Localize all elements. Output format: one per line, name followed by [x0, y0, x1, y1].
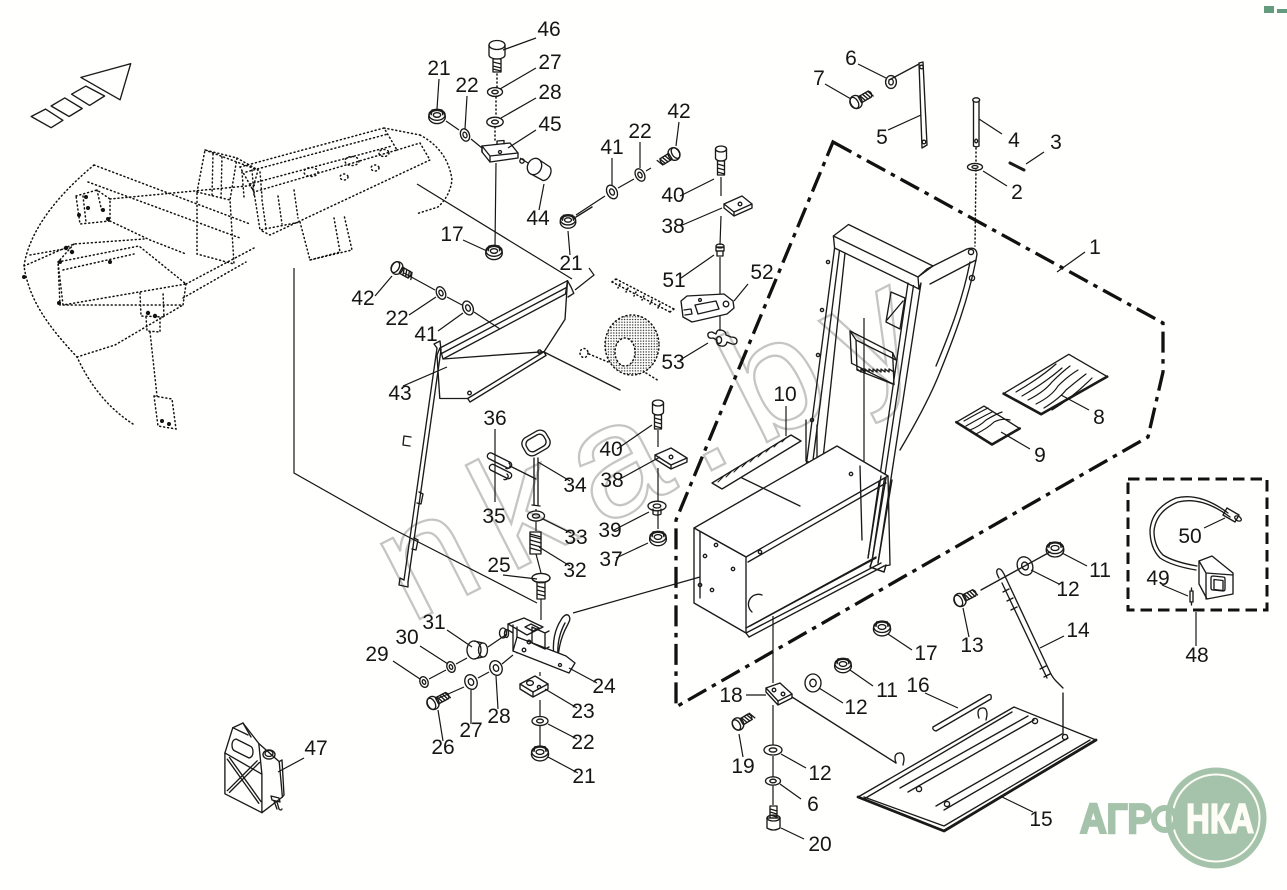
svg-text:51: 51	[662, 269, 685, 292]
svg-text:40: 40	[599, 438, 622, 461]
svg-text:52: 52	[750, 261, 773, 284]
svg-text:22: 22	[571, 731, 594, 754]
svg-text:17: 17	[440, 223, 463, 246]
svg-text:12: 12	[1056, 578, 1079, 601]
svg-text:28: 28	[538, 81, 561, 104]
svg-text:6: 6	[807, 793, 819, 816]
svg-text:28: 28	[487, 705, 510, 728]
svg-text:20: 20	[808, 833, 831, 856]
svg-text:23: 23	[571, 700, 594, 723]
svg-text:45: 45	[538, 113, 561, 136]
svg-text:1: 1	[1089, 236, 1101, 259]
svg-text:12: 12	[808, 762, 831, 785]
svg-text:22: 22	[628, 120, 651, 143]
svg-text:11: 11	[1089, 559, 1111, 582]
svg-text:2: 2	[1011, 181, 1023, 204]
svg-text:6: 6	[845, 47, 857, 70]
svg-text:41: 41	[600, 136, 623, 159]
svg-text:32: 32	[563, 559, 586, 582]
svg-text:8: 8	[1093, 406, 1105, 429]
svg-text:38: 38	[661, 215, 684, 238]
svg-text:42: 42	[351, 287, 374, 310]
svg-text:33: 33	[564, 526, 587, 549]
svg-text:41: 41	[414, 323, 437, 346]
svg-text:19: 19	[731, 755, 754, 778]
svg-text:47: 47	[304, 737, 327, 760]
svg-text:21: 21	[427, 57, 450, 80]
svg-text:25: 25	[487, 554, 510, 577]
svg-text:37: 37	[599, 548, 622, 571]
svg-text:12: 12	[844, 696, 867, 719]
svg-text:14: 14	[1066, 619, 1090, 642]
svg-text:50: 50	[1178, 525, 1201, 548]
svg-text:43: 43	[388, 382, 411, 405]
svg-text:21: 21	[572, 765, 595, 788]
svg-text:17: 17	[914, 642, 937, 665]
svg-text:48: 48	[1185, 644, 1208, 667]
svg-text:53: 53	[661, 351, 684, 374]
svg-text:3: 3	[1050, 131, 1062, 154]
svg-text:22: 22	[385, 307, 408, 330]
svg-text:4: 4	[1008, 129, 1020, 152]
svg-text:10: 10	[773, 383, 796, 406]
svg-text:13: 13	[960, 634, 983, 657]
svg-text:44: 44	[526, 207, 550, 230]
svg-text:НКА: НКА	[1186, 795, 1254, 842]
svg-text:27: 27	[538, 51, 561, 74]
svg-text:АГР: АГР	[1080, 795, 1152, 842]
svg-text:29: 29	[365, 643, 388, 666]
svg-text:31: 31	[422, 611, 445, 634]
svg-text:34: 34	[563, 474, 587, 497]
svg-text:30: 30	[395, 626, 418, 649]
svg-text:nka.by: nka.by	[344, 221, 963, 654]
svg-text:9: 9	[1034, 444, 1046, 467]
svg-text:35: 35	[482, 505, 505, 528]
svg-text:46: 46	[537, 18, 560, 41]
svg-text:21: 21	[559, 252, 582, 275]
svg-text:39: 39	[598, 519, 621, 542]
svg-text:36: 36	[483, 407, 506, 430]
svg-text:7: 7	[813, 67, 825, 90]
svg-text:11: 11	[876, 679, 898, 702]
svg-text:42: 42	[667, 100, 690, 123]
svg-text:38: 38	[600, 469, 623, 492]
svg-text:5: 5	[876, 126, 888, 149]
svg-text:24: 24	[592, 675, 616, 698]
svg-text:22: 22	[455, 74, 478, 97]
svg-text:18: 18	[719, 684, 742, 707]
